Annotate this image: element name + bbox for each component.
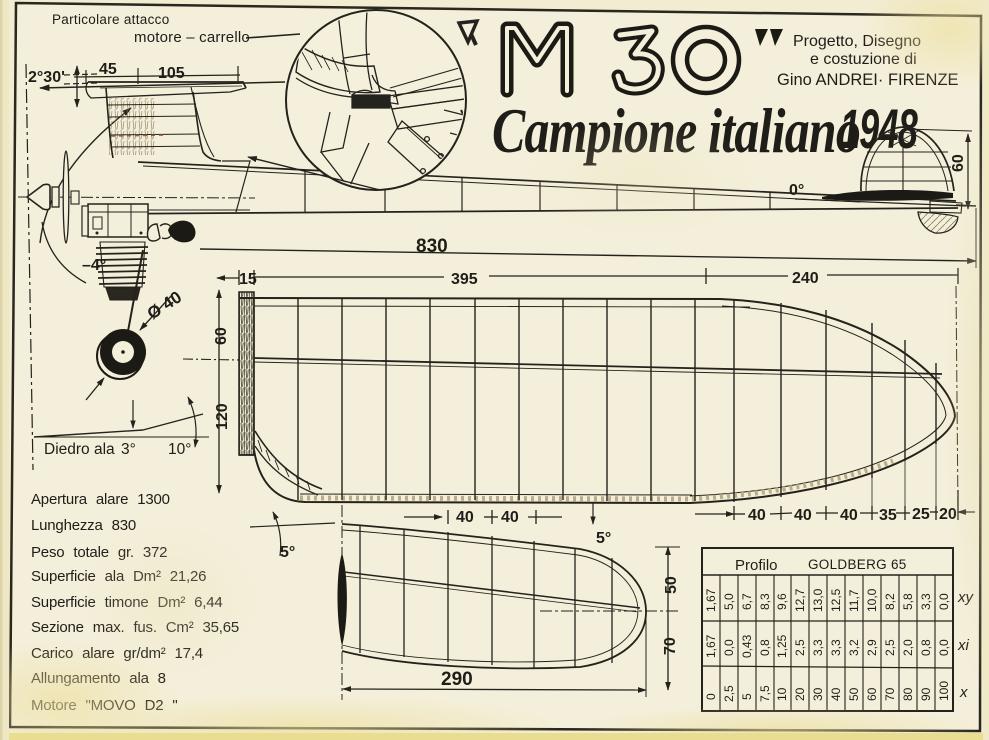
svg-text:Profilo: Profilo bbox=[735, 557, 778, 574]
svg-text:1,25: 1,25 bbox=[775, 634, 789, 658]
svg-text:8,3: 8,3 bbox=[758, 593, 772, 610]
svg-text:Lunghezza 830: Lunghezza 830 bbox=[31, 517, 136, 534]
svg-text:45: 45 bbox=[99, 61, 117, 78]
svg-text:Apertura alare 1300: Apertura alare 1300 bbox=[31, 491, 170, 508]
svg-text:3°: 3° bbox=[121, 441, 136, 458]
svg-text:3,3: 3,3 bbox=[919, 593, 933, 610]
svg-text:12,7: 12,7 bbox=[793, 588, 807, 612]
svg-text:9,6: 9,6 bbox=[775, 593, 789, 610]
svg-text:40: 40 bbox=[748, 507, 766, 524]
svg-text:80: 80 bbox=[901, 687, 915, 701]
svg-text:60: 60 bbox=[213, 327, 230, 345]
svg-text:1,67: 1,67 bbox=[704, 634, 718, 658]
svg-text:0,8: 0,8 bbox=[758, 639, 772, 656]
svg-text:0°: 0° bbox=[789, 182, 804, 199]
svg-text:30: 30 bbox=[811, 687, 825, 701]
svg-text:10°: 10° bbox=[168, 441, 191, 458]
svg-text:11,7: 11,7 bbox=[847, 589, 861, 612]
svg-text:70: 70 bbox=[883, 687, 897, 701]
svg-text:0,8: 0,8 bbox=[919, 639, 933, 656]
svg-text:40: 40 bbox=[501, 509, 519, 526]
svg-text:1,67: 1,67 bbox=[704, 588, 718, 612]
svg-text:60: 60 bbox=[865, 687, 879, 701]
svg-text:0,0: 0,0 bbox=[722, 639, 736, 656]
svg-text:motore – carrello: motore – carrello bbox=[134, 29, 250, 46]
svg-text:7,5: 7,5 bbox=[758, 685, 772, 702]
svg-text:90: 90 bbox=[919, 687, 933, 701]
svg-text:70: 70 bbox=[662, 637, 679, 655]
svg-text:290: 290 bbox=[441, 669, 473, 690]
svg-text:6,7: 6,7 bbox=[740, 593, 754, 610]
svg-text:120: 120 bbox=[214, 403, 231, 430]
svg-text:5: 5 bbox=[740, 693, 754, 700]
svg-text:5°: 5° bbox=[280, 544, 295, 561]
svg-text:3,3: 3,3 bbox=[811, 639, 825, 656]
svg-text:1948: 1948 bbox=[840, 97, 918, 160]
svg-text:100: 100 bbox=[937, 681, 951, 701]
svg-text:50: 50 bbox=[847, 687, 861, 701]
svg-text:105: 105 bbox=[158, 65, 185, 82]
svg-text:3,3: 3,3 bbox=[829, 639, 843, 656]
svg-text:2°30': 2°30' bbox=[28, 69, 65, 86]
svg-text:0,43: 0,43 bbox=[740, 634, 754, 658]
svg-text:3,2: 3,2 bbox=[847, 639, 861, 656]
svg-text:0: 0 bbox=[704, 693, 718, 700]
svg-text:5°: 5° bbox=[596, 530, 611, 547]
svg-text:5,8: 5,8 bbox=[901, 593, 915, 610]
svg-text:2,5: 2,5 bbox=[883, 639, 897, 656]
svg-text:Particolare attacco: Particolare attacco bbox=[52, 12, 170, 27]
svg-text:395: 395 bbox=[451, 271, 478, 288]
svg-text:50: 50 bbox=[663, 576, 680, 594]
svg-text:35: 35 bbox=[879, 507, 897, 524]
svg-text:20: 20 bbox=[793, 687, 807, 701]
svg-text:x: x bbox=[959, 684, 968, 701]
svg-text:–4°: –4° bbox=[82, 257, 106, 274]
svg-text:2,9: 2,9 bbox=[865, 639, 879, 656]
svg-text:2,5: 2,5 bbox=[722, 685, 736, 702]
svg-text:13,0: 13,0 bbox=[811, 588, 825, 612]
svg-text:240: 240 bbox=[792, 270, 819, 287]
svg-text:40: 40 bbox=[794, 507, 812, 524]
svg-text:10: 10 bbox=[775, 687, 789, 701]
svg-text:Diedro ala: Diedro ala bbox=[44, 441, 115, 458]
svg-text:15: 15 bbox=[239, 271, 257, 288]
svg-text:8,2: 8,2 bbox=[883, 593, 897, 610]
svg-text:25: 25 bbox=[912, 506, 930, 523]
svg-text:0,0: 0,0 bbox=[937, 593, 951, 610]
svg-text:40: 40 bbox=[840, 507, 858, 524]
svg-text:2,5: 2,5 bbox=[793, 639, 807, 656]
svg-text:5,0: 5,0 bbox=[722, 593, 736, 610]
svg-text:2,0: 2,0 bbox=[901, 639, 915, 656]
svg-text:40: 40 bbox=[456, 509, 474, 526]
svg-text:40: 40 bbox=[829, 687, 843, 701]
svg-text:830: 830 bbox=[416, 236, 448, 257]
svg-text:0,0: 0,0 bbox=[937, 639, 951, 656]
svg-text:12,5: 12,5 bbox=[829, 588, 843, 612]
svg-text:10,0: 10,0 bbox=[865, 588, 879, 612]
svg-text:GOLDBERG 65: GOLDBERG 65 bbox=[808, 557, 907, 572]
